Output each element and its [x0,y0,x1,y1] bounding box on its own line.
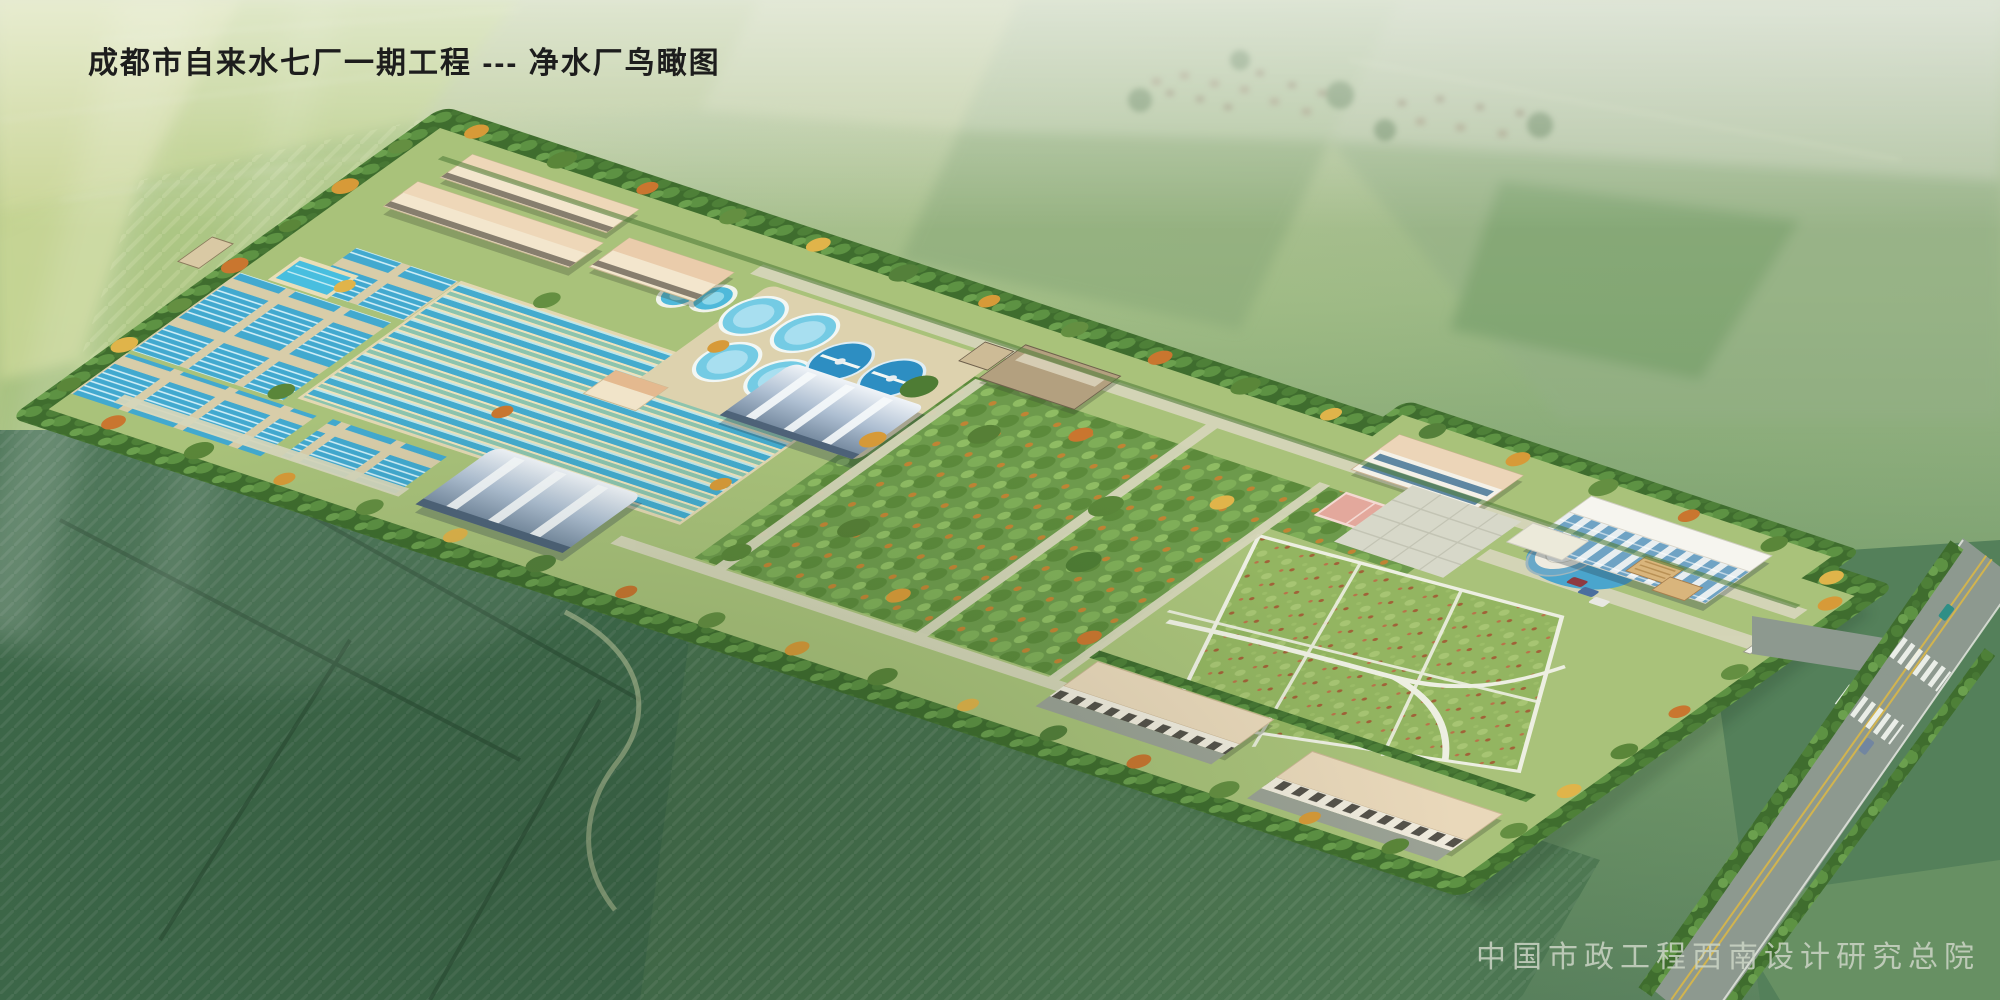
title-caption: 成都市自来水七厂一期工程 --- 净水厂鸟瞰图 [88,38,721,82]
scene-canvas [0,0,2000,1000]
birdseye-rendering: 成都市自来水七厂一期工程 --- 净水厂鸟瞰图 中国市政工程西南设计研究总院 [0,0,2000,1000]
studio-credit: 中国市政工程西南设计研究总院 [1476,932,1980,976]
vignette [0,0,2000,1000]
